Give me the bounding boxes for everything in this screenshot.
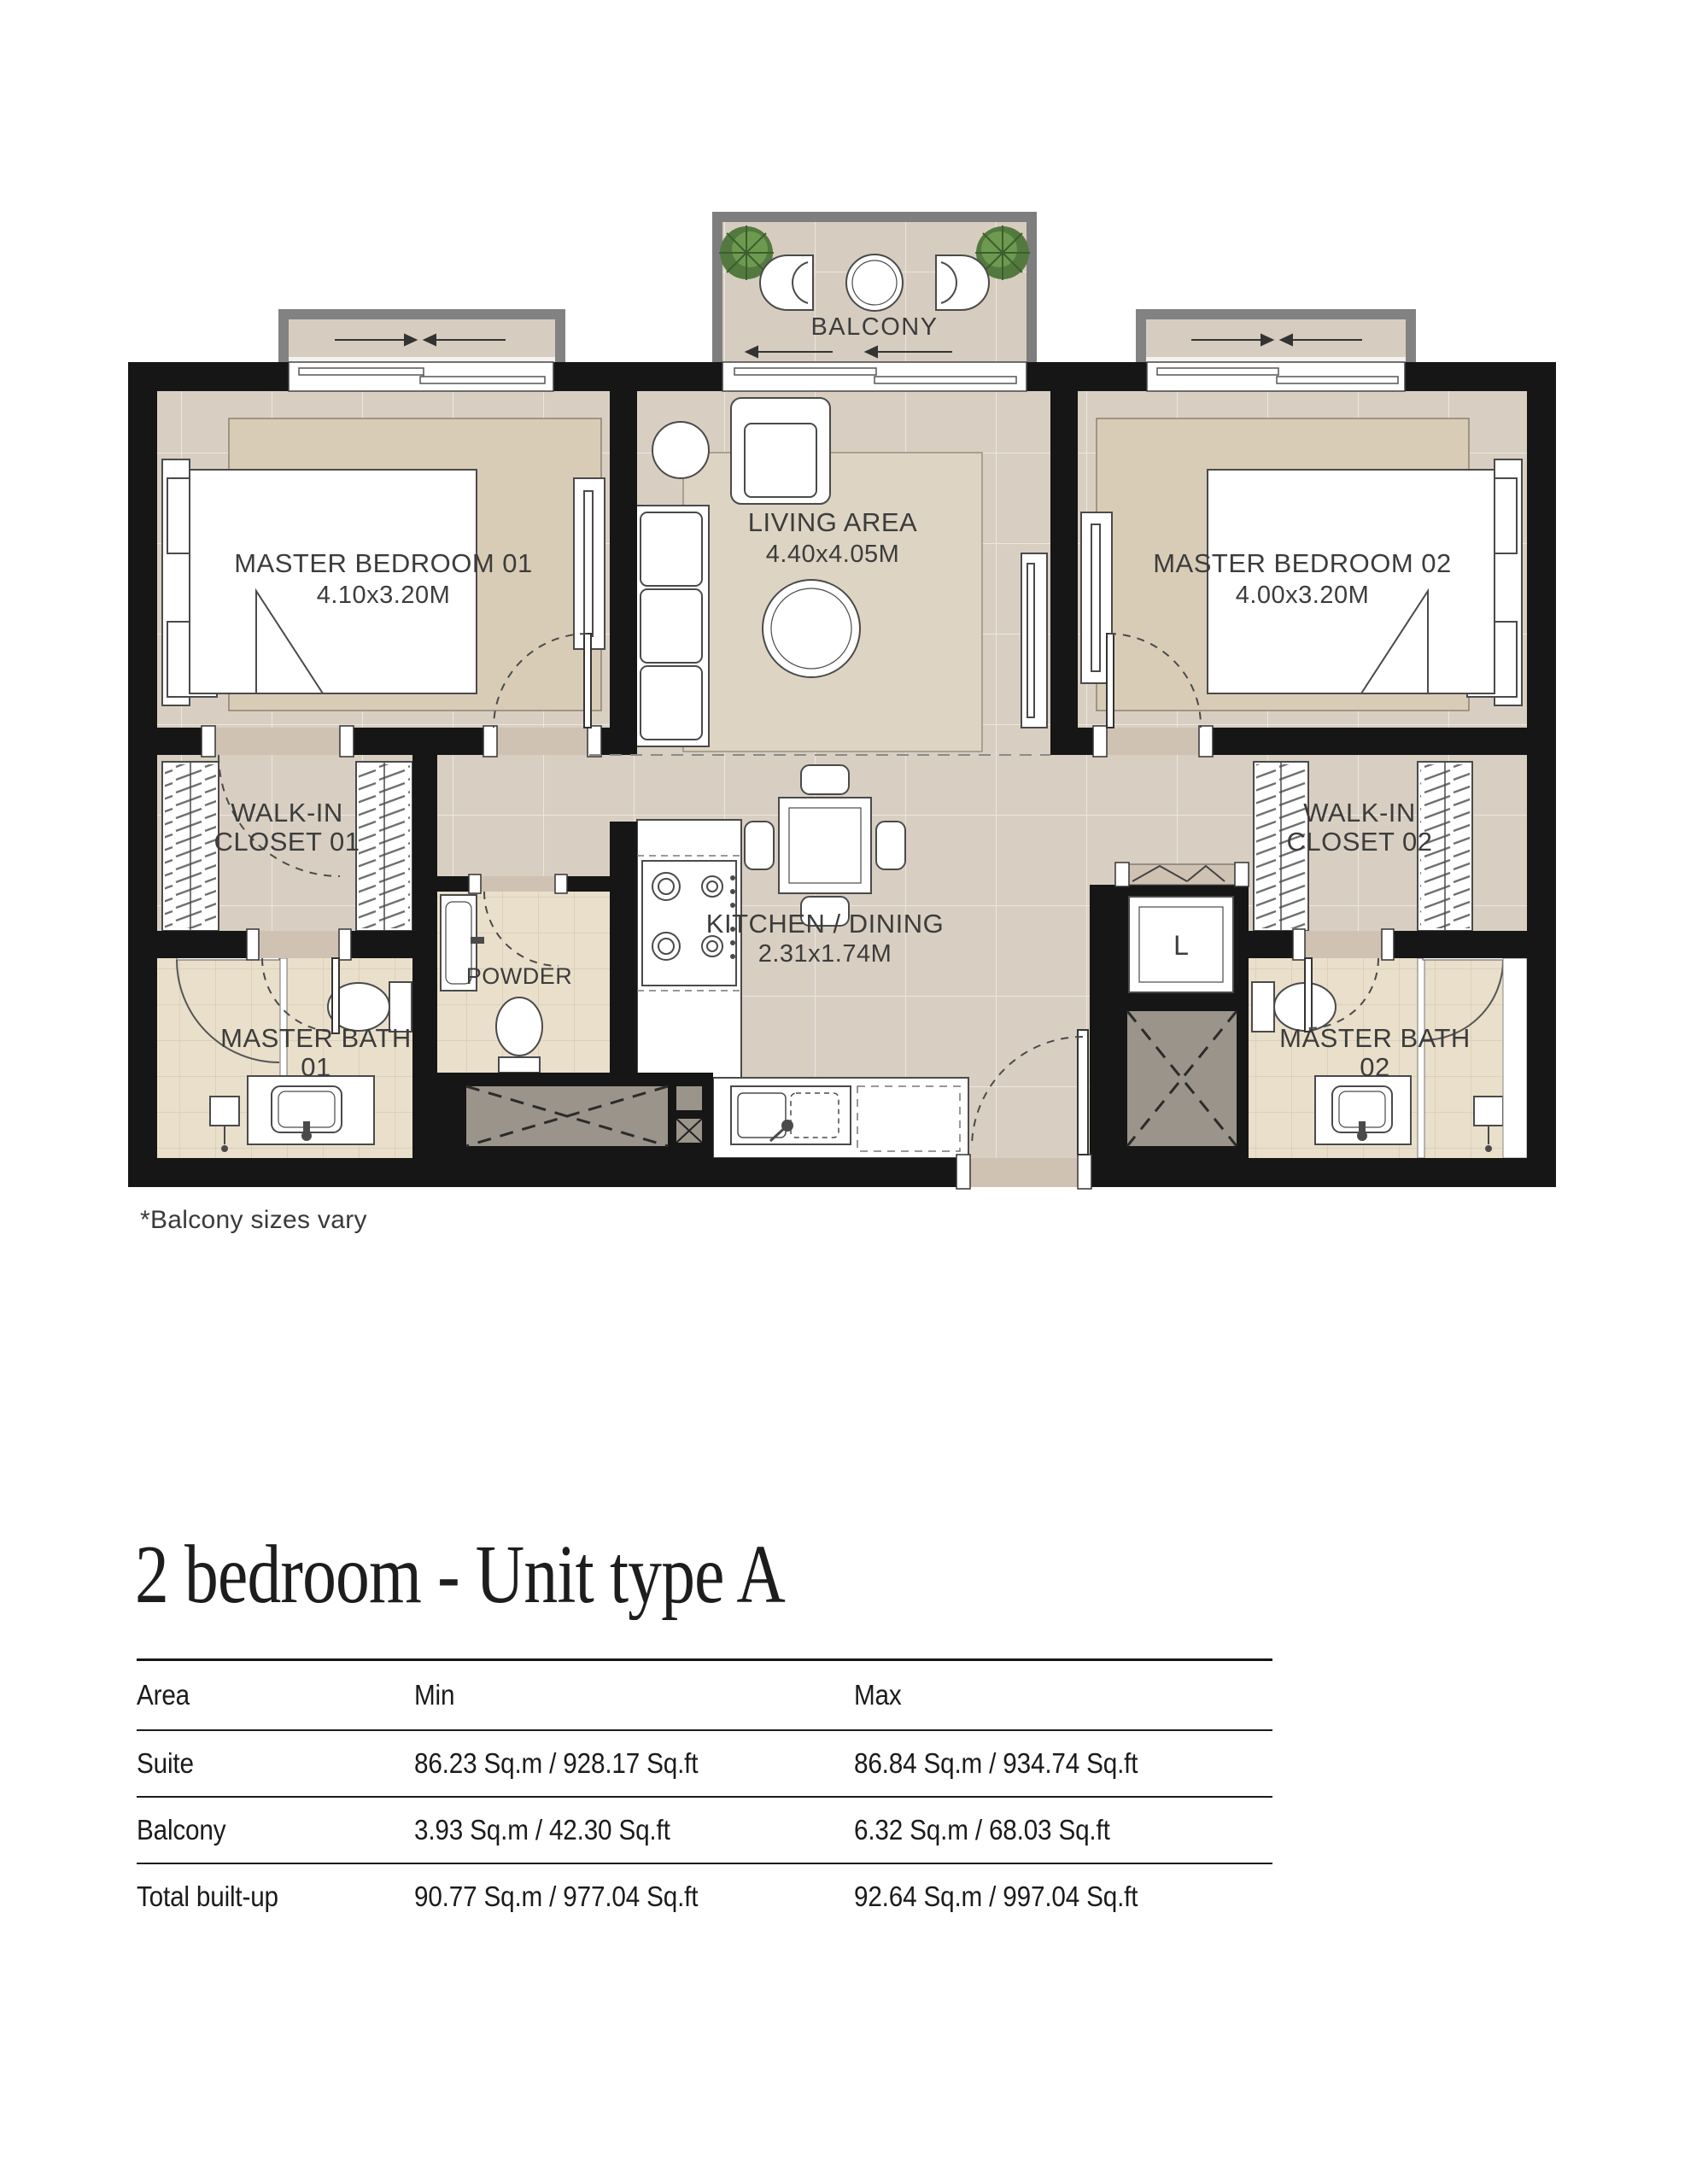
row-min: 90.77 Sq.m / 977.04 Sq.ft	[414, 1881, 854, 1913]
sink-icon	[1315, 1076, 1411, 1144]
floor-plan: BALCONY	[0, 0, 1708, 1281]
table-row: Suite 86.23 Sq.m / 928.17 Sq.ft 86.84 Sq…	[137, 1731, 1272, 1798]
sofa-icon	[629, 506, 709, 746]
bath2-label-line2: 02	[1360, 1052, 1389, 1082]
balcony-label: BALCONY	[810, 313, 938, 341]
shaft	[1127, 1011, 1237, 1146]
living-label: LIVING AREA	[748, 507, 917, 537]
bedroom2-terrace	[1136, 309, 1416, 362]
kitchen-label: KITCHEN / DINING	[706, 909, 944, 939]
balcony-table-icon	[846, 254, 903, 311]
header-max: Max	[854, 1679, 1272, 1711]
window	[289, 362, 553, 391]
bath1-label-line1: MASTER BATH	[220, 1023, 412, 1053]
balcony-note: *Balcony sizes vary	[140, 1206, 367, 1235]
row-area: Total built-up	[137, 1881, 414, 1913]
tv-console-icon	[1021, 553, 1047, 728]
wardrobe-icon	[356, 762, 412, 931]
closet2-label-line1: WALK-IN	[1303, 798, 1416, 828]
page-title: 2 bedroom - Unit type A	[135, 1527, 785, 1622]
laundry-closet: L	[1127, 864, 1237, 992]
bedroom2-label: MASTER BEDROOM 02	[1153, 548, 1452, 578]
row-area: Balcony	[137, 1814, 414, 1846]
row-area: Suite	[137, 1747, 414, 1780]
side-table-icon	[652, 422, 709, 478]
area-table: Area Min Max Suite 86.23 Sq.m / 928.17 S…	[137, 1658, 1272, 1929]
balcony-chair-icon	[936, 255, 989, 310]
window	[1147, 362, 1405, 391]
balcony-chair-icon	[760, 255, 813, 310]
table-row: Balcony 3.93 Sq.m / 42.30 Sq.ft 6.32 Sq.…	[137, 1798, 1272, 1864]
header-min: Min	[414, 1679, 854, 1711]
powder-label: POWDER	[466, 963, 573, 989]
armchair-icon	[731, 398, 830, 504]
row-min: 86.23 Sq.m / 928.17 Sq.ft	[414, 1747, 854, 1780]
tv-console-icon	[574, 478, 605, 649]
bedroom1-label: MASTER BEDROOM 01	[234, 548, 533, 578]
laundry-label: L	[1173, 930, 1189, 961]
balcony: BALCONY	[712, 212, 1037, 362]
bath1-label-line2: 01	[301, 1052, 330, 1082]
bath2-divider	[1418, 958, 1424, 1158]
kitchen-sink-icon	[731, 1086, 851, 1144]
sink-icon	[248, 1076, 374, 1144]
bedroom1-terrace	[278, 309, 565, 362]
shower-glass	[1503, 958, 1527, 1158]
coffee-table-icon	[763, 580, 860, 677]
shaft	[466, 1086, 702, 1146]
bedroom1-dims: 4.10x3.20M	[317, 582, 451, 609]
brochure-page: BALCONY	[0, 0, 1708, 2176]
kitchen-dims: 2.31x1.74M	[758, 940, 892, 968]
table-header-row: Area Min Max	[137, 1661, 1272, 1731]
closet2-label-line2: CLOSET 02	[1286, 827, 1432, 857]
row-max: 6.32 Sq.m / 68.03 Sq.ft	[854, 1814, 1272, 1846]
living-dims: 4.40x4.05M	[766, 541, 900, 568]
window	[722, 362, 1027, 391]
table-row: Total built-up 90.77 Sq.m / 977.04 Sq.ft…	[137, 1864, 1272, 1929]
kitchen-counter	[713, 1078, 968, 1158]
bath1-divider	[280, 958, 287, 1078]
row-max: 92.64 Sq.m / 997.04 Sq.ft	[854, 1881, 1272, 1913]
row-min: 3.93 Sq.m / 42.30 Sq.ft	[414, 1814, 854, 1846]
bath2-label-line1: MASTER BATH	[1279, 1023, 1471, 1053]
closet1-label-line1: WALK-IN	[231, 798, 343, 828]
row-max: 86.84 Sq.m / 934.74 Sq.ft	[854, 1747, 1272, 1780]
kitchen-counter	[637, 820, 741, 1085]
bedroom2-dims: 4.00x3.20M	[1236, 582, 1370, 609]
toilet-icon	[496, 997, 542, 1073]
closet1-label-line2: CLOSET 01	[213, 827, 360, 857]
wardrobe-icon	[162, 762, 219, 931]
header-area: Area	[137, 1679, 414, 1711]
